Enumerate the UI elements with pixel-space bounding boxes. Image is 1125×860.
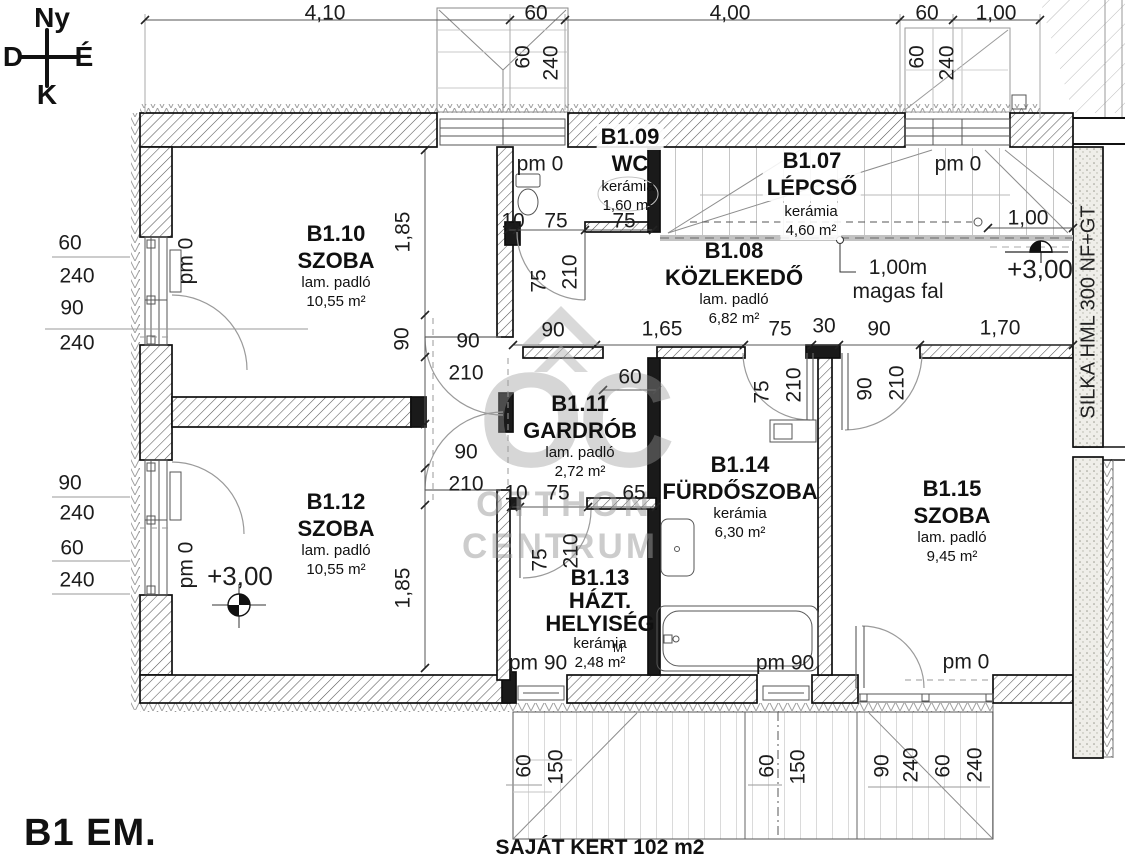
room-label-b114: B1.14 FÜRDŐSZOBA kerámia 6,30 m²	[662, 452, 817, 542]
dim-label: 90	[867, 319, 890, 340]
dim-label: 240	[59, 333, 94, 354]
room-name: LÉPCSŐ	[763, 174, 861, 201]
compass-cross	[20, 30, 78, 86]
dim-label: 60	[618, 367, 641, 388]
room-label-b110: B1.10 SZOBA lam. padló 10,55 m²	[298, 221, 375, 311]
dim-label: 10	[504, 483, 527, 504]
dim-label: 240	[901, 747, 922, 782]
door-arc-b112-balcony	[172, 462, 244, 534]
dim-label: 210	[784, 367, 805, 402]
dim-label: 75	[530, 548, 551, 571]
dim-label: 1,70	[980, 318, 1021, 339]
room-sub-b107: kerámia 4,60 m²	[780, 203, 841, 240]
pm-label: pm 0	[943, 652, 990, 673]
dim-label: 150	[546, 749, 567, 784]
dim-label: 90	[855, 377, 876, 400]
toilet-bathroom	[770, 420, 816, 442]
room-id: B1.15	[914, 476, 991, 502]
pm-label: pm 0	[176, 542, 197, 589]
room-floor: kerámia	[780, 203, 841, 221]
room-name: SZOBA	[298, 247, 375, 274]
low-wall-note: 1,00m magas fal	[852, 256, 943, 304]
pm-label: pm 90	[509, 653, 567, 674]
room-area: 9,45 m²	[914, 547, 991, 566]
dim-label: 60	[60, 538, 83, 559]
pm-label: pm 0	[935, 154, 982, 175]
room-label-b115: B1.15 SZOBA lam. padló 9,45 m²	[914, 476, 991, 566]
dim-label: 240	[59, 570, 94, 591]
dim-label: 240	[541, 45, 562, 80]
pm-label: pm 90	[756, 653, 814, 674]
dim-label: 210	[561, 533, 582, 568]
dim-label: 1,00	[976, 3, 1017, 24]
dim-label: 90	[392, 327, 413, 350]
dim-label: 1,85	[393, 212, 414, 253]
room-area: 2,72 m²	[523, 462, 637, 481]
room-id: B1.14	[662, 452, 817, 478]
compass-right: É	[75, 41, 94, 73]
dim-label: 60	[524, 3, 547, 24]
dim-label: 60	[915, 3, 938, 24]
dim-label: 1,65	[642, 319, 683, 340]
room-name: FÜRDŐSZOBA	[662, 478, 817, 505]
room-id: B1.13	[545, 566, 654, 589]
dim-label: 240	[59, 503, 94, 524]
room-id: B1.07	[763, 148, 861, 174]
dim-label: 90	[58, 473, 81, 494]
room-floor: kerámia	[545, 635, 654, 653]
pm-label: pm 0	[176, 238, 197, 285]
room-label-b111: B1.11 GARDRÓB lam. padló 2,72 m²	[523, 391, 637, 481]
room-label-b107: B1.07 LÉPCSŐ	[763, 148, 861, 201]
room-area: 10,55 m²	[298, 292, 375, 311]
dim-label: 90	[60, 298, 83, 319]
room-label-b109: B1.09 WC	[597, 124, 664, 177]
room-area: 10,55 m²	[298, 560, 375, 579]
dim-label: 10	[501, 211, 524, 232]
dim-label: 60	[907, 45, 928, 68]
dim-label: 90	[456, 331, 479, 352]
room-name: SZOBA	[298, 515, 375, 542]
dim-label: 1,00	[1008, 208, 1049, 229]
room-floor: lam. padló	[298, 542, 375, 560]
dim-label: 240	[59, 266, 94, 287]
room-area: 6,30 m²	[662, 523, 817, 542]
dim-label: 4,10	[305, 3, 346, 24]
room-name: WC	[597, 150, 664, 177]
room-label-b108: B1.08 KÖZLEKEDŐ lam. padló 6,82 m²	[665, 238, 803, 328]
dim-label: 65	[622, 483, 645, 504]
floorplan-page: OC OTTHON CENTRUM Ny D É K B1.09 WC kerá…	[0, 0, 1125, 860]
room-name-2: HELYISÉG	[545, 612, 654, 635]
compass-left: D	[3, 41, 23, 73]
garden-title: SAJÁT KERT 102 m2	[496, 836, 705, 860]
room-id: B1.10	[298, 221, 375, 247]
dim-label: 75	[546, 483, 569, 504]
dim-label: 60	[514, 754, 535, 777]
dim-label: 75	[752, 380, 773, 403]
pm-label: pm 0	[517, 154, 564, 175]
compass-top: Ny	[34, 2, 70, 34]
dim-label: 240	[937, 45, 958, 80]
level-label: +3,00	[207, 563, 273, 589]
sliding-door	[858, 694, 993, 702]
door-arc-b110-balcony	[172, 295, 247, 370]
room-floor: lam. padló	[298, 274, 375, 292]
dim-label: 210	[448, 474, 483, 495]
appliance-label: M	[613, 642, 623, 654]
wall-material-label: SILKA HML 300 NF+GT	[1078, 205, 1101, 418]
dim-label: 75	[544, 211, 567, 232]
room-id: B1.12	[298, 489, 375, 515]
room-name: KÖZLEKEDŐ	[665, 264, 803, 291]
dim-label: 4,00	[710, 3, 751, 24]
dim-label: 90	[872, 754, 893, 777]
room-floor: kerámia	[662, 505, 817, 523]
room-id: B1.11	[523, 391, 637, 417]
dim-label: 210	[560, 254, 581, 289]
floor-title: B1 EM.	[24, 812, 157, 855]
dim-label: 30	[812, 316, 835, 337]
room-name: HÁZT.	[545, 589, 654, 612]
dim-label: 90	[454, 442, 477, 463]
dim-label: 60	[757, 754, 778, 777]
room-floor: lam. padló	[914, 529, 991, 547]
door-arc-b115-terrace	[862, 626, 924, 688]
level-label: +3,00	[1007, 256, 1073, 282]
dim-label: 75	[529, 269, 550, 292]
dim-label: 210	[448, 363, 483, 384]
room-floor: lam. padló	[523, 444, 637, 462]
room-floor: lam. padló	[665, 291, 803, 309]
dim-label: 150	[788, 749, 809, 784]
room-label-b112: B1.12 SZOBA lam. padló 10,55 m²	[298, 489, 375, 579]
room-id: B1.09	[597, 124, 664, 150]
dim-label: 60	[513, 45, 534, 68]
dim-label: 60	[58, 233, 81, 254]
dim-label: 75	[612, 211, 635, 232]
room-name: GARDRÓB	[523, 417, 637, 444]
dim-label: 210	[887, 365, 908, 400]
dim-label: 75	[768, 319, 791, 340]
dim-label: 240	[965, 747, 986, 782]
compass-bottom: K	[37, 79, 57, 111]
dim-label: 1,85	[393, 568, 414, 609]
dim-label: 60	[933, 754, 954, 777]
room-floor: kerámia	[601, 178, 654, 196]
room-name: SZOBA	[914, 502, 991, 529]
radiator	[170, 472, 181, 520]
room-id: B1.08	[665, 238, 803, 264]
dim-label: 90	[541, 320, 564, 341]
